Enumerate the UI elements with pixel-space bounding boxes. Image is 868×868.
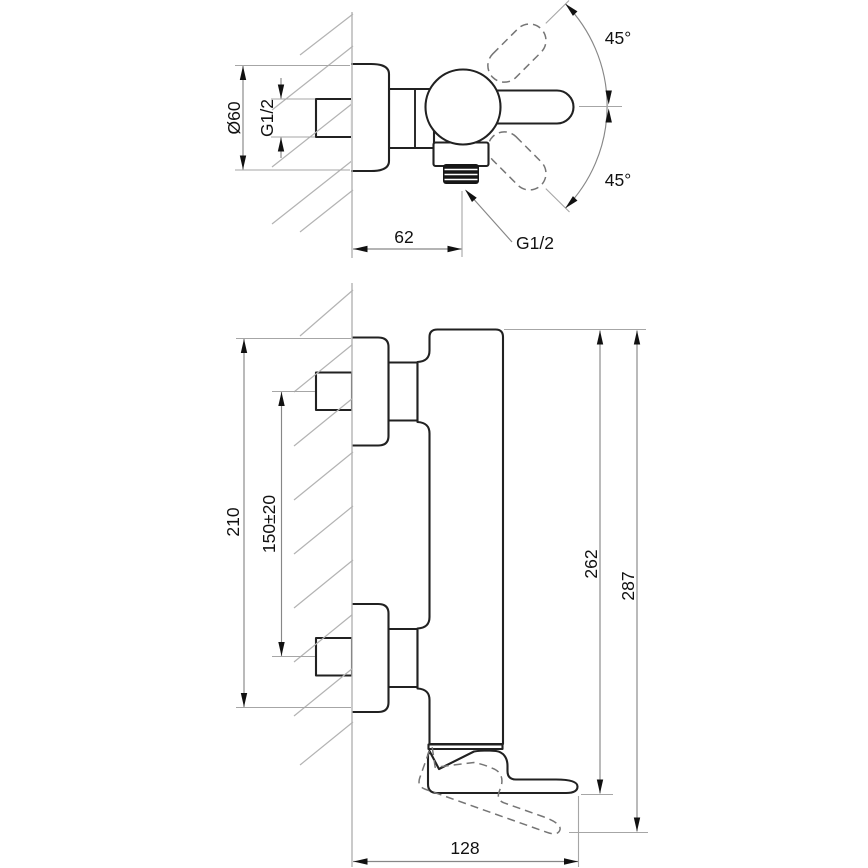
overall-depth-label: 287 — [618, 571, 638, 600]
valve-body — [426, 70, 501, 145]
upper-inlet-nipple — [316, 373, 352, 411]
lower-inlet-nipple — [316, 638, 352, 676]
wall-hatching-side — [294, 290, 353, 765]
wall-to-outlet-label: 62 — [394, 227, 413, 247]
lever-dashed-up — [481, 17, 553, 89]
lower-wall-flange — [352, 604, 389, 712]
lever-dashed-down — [481, 125, 553, 197]
swing-angle-top-label: 45° — [605, 28, 631, 48]
outlet-block — [434, 143, 489, 167]
inlet-centers-spacing-label: 150±20 — [259, 495, 279, 554]
dim-inlet-thread: G1/2 — [257, 78, 315, 158]
dim-inlet-centers-spacing: 150±20 — [259, 392, 315, 657]
drawing-canvas: Ø60 G1/2 62 G1/2 — [0, 0, 868, 868]
flange-diameter-label: Ø60 — [224, 101, 244, 134]
lever-side-solid — [428, 751, 578, 794]
mixer-body — [418, 330, 504, 745]
body-base-plate — [429, 745, 503, 750]
handle-projection-label: 128 — [450, 838, 479, 858]
technical-drawing: Ø60 G1/2 62 G1/2 — [0, 0, 868, 868]
side-view: 210 150±20 262 287 — [223, 283, 648, 867]
outlet-thread-callout: G1/2 — [463, 187, 554, 253]
dim-overall-depth: 287 — [569, 331, 648, 833]
dim-wall-to-outlet: 62 — [353, 191, 462, 257]
swing-angle-bottom-label: 45° — [605, 170, 631, 190]
upper-connection-nut — [389, 363, 418, 421]
top-view: Ø60 G1/2 62 G1/2 — [224, 1, 631, 259]
inlet-thread-label: G1/2 — [257, 99, 277, 137]
dim-depth-to-handle: 262 — [504, 330, 646, 795]
upper-wall-flange — [352, 338, 389, 446]
outlet-thread-label: G1/2 — [516, 233, 554, 253]
overall-plate-span-label: 210 — [223, 507, 243, 536]
wall-flange — [351, 64, 389, 171]
lower-connection-nut — [389, 629, 418, 687]
depth-to-handle-label: 262 — [581, 549, 601, 578]
